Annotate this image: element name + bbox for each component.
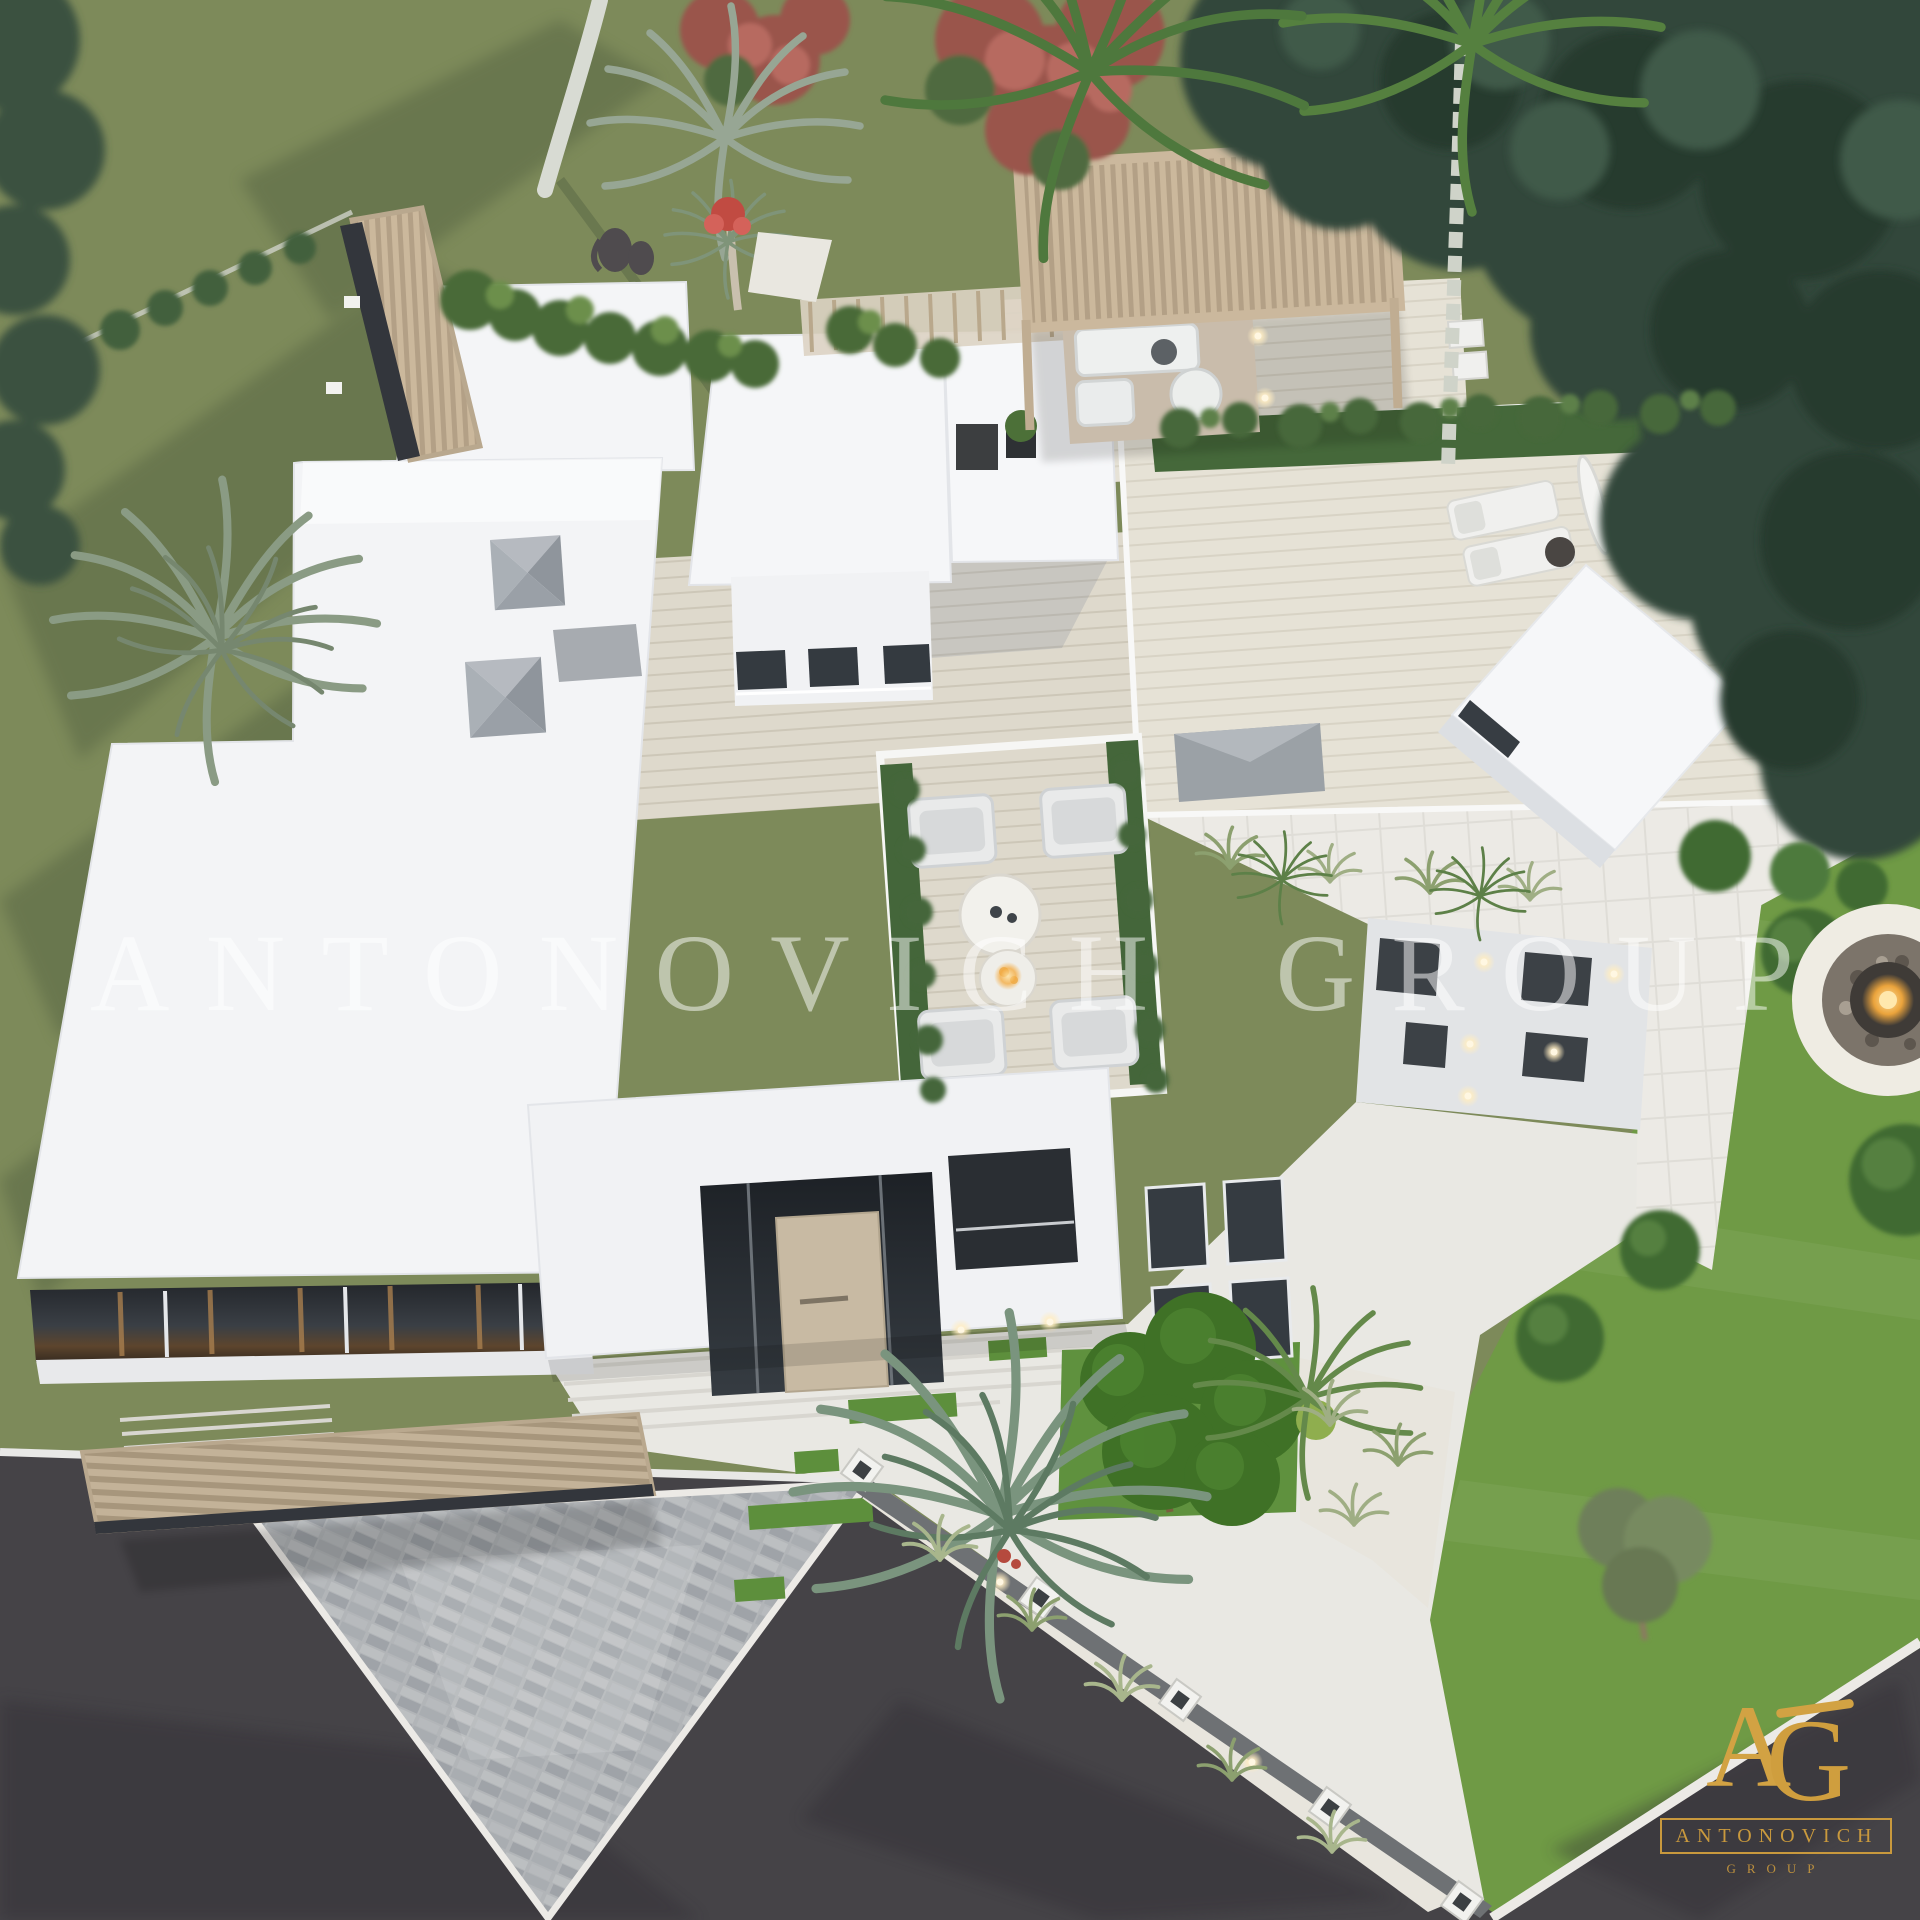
- outdoor-chair: [1076, 379, 1134, 426]
- side-wall: [1356, 918, 1652, 1130]
- aerial-render: ANTONOVICH GROUP A G ANTONOVICH GROUP: [0, 0, 1920, 1920]
- floor-lamp: [1254, 387, 1276, 409]
- outdoor-chair-dark: [956, 424, 998, 470]
- logo-subtitle: GROUP: [1648, 1861, 1904, 1877]
- roof-highlight: [300, 458, 662, 524]
- logo-monogram-g: G: [1766, 1702, 1851, 1820]
- coffee-table: [1151, 339, 1177, 365]
- pergola-post: [1394, 298, 1398, 408]
- pyramid-skylight: [490, 535, 565, 610]
- outdoor-sofa: [1075, 324, 1199, 376]
- garage-glass-band: [30, 1282, 592, 1362]
- flat-panel: [553, 624, 642, 682]
- floor-lamp: [1247, 325, 1269, 347]
- candle-glow: [994, 962, 1022, 990]
- scene-svg: [0, 0, 1920, 1920]
- pyramid-skylight: [465, 657, 546, 738]
- side-table: [1545, 537, 1575, 567]
- recessed-opening: [948, 1148, 1078, 1270]
- pergola-post: [1026, 320, 1030, 430]
- logo-monogram: A G: [1648, 1688, 1904, 1816]
- brand-logo: A G ANTONOVICH GROUP: [1648, 1688, 1904, 1877]
- clerestory-windows: [736, 644, 931, 690]
